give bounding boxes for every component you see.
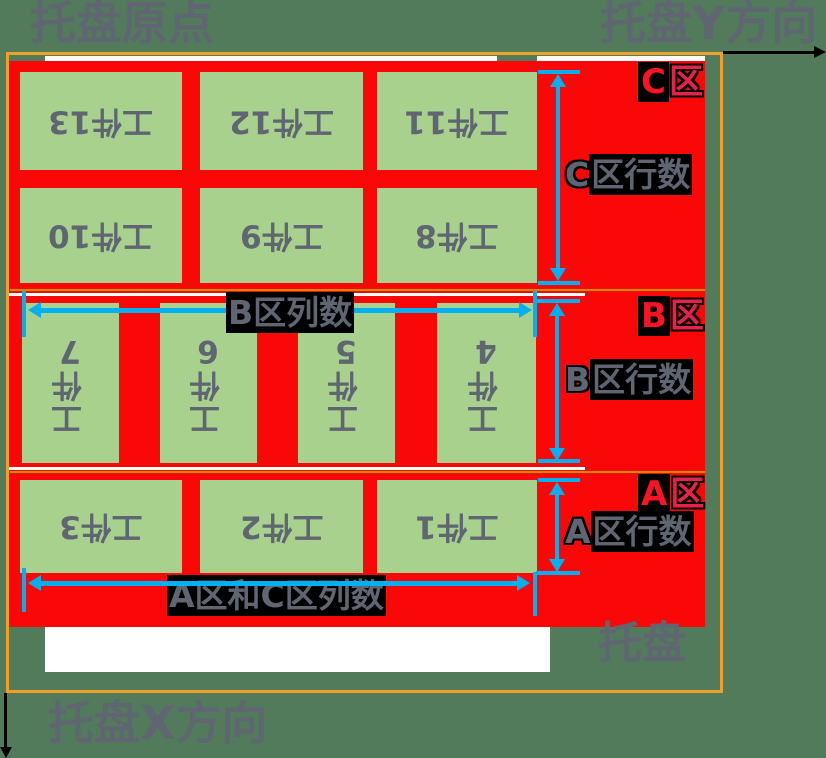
ac-cols-arrowhead-right-icon bbox=[517, 575, 530, 591]
pallet-x-direction-label: 托盘X方向 bbox=[48, 700, 267, 746]
x-axis-arrow-line bbox=[4, 693, 7, 748]
b-rows-count-first-char: B bbox=[565, 360, 590, 399]
b-rows-count-rest: 区行数 bbox=[590, 359, 693, 400]
x-axis-arrowhead-icon bbox=[0, 747, 12, 758]
b-cols-count-text: B区列数 bbox=[226, 292, 354, 333]
zone-c-suffix: 区 bbox=[669, 62, 703, 102]
zone-b-suffix: 区 bbox=[670, 296, 704, 336]
pallet-origin-label: 托盘原点 bbox=[30, 0, 214, 46]
b-cols-count-label: B区列数 bbox=[226, 295, 354, 331]
zone-c-tag: C区 bbox=[638, 64, 703, 101]
c-rows-count-label: C区行数 bbox=[565, 157, 692, 193]
b-rows-count-label: B区行数 bbox=[565, 362, 693, 398]
y-axis-arrowhead-icon bbox=[814, 46, 826, 58]
b-rows-dimension-line bbox=[555, 314, 559, 450]
a-rows-count-label: A区行数 bbox=[565, 514, 694, 550]
zone-a-tag: A区 bbox=[638, 476, 704, 513]
b-cols-arrowhead-right-icon bbox=[519, 302, 532, 318]
c-rows-count-first-char: C bbox=[565, 155, 589, 194]
c-rows-arrowhead-down-icon bbox=[550, 268, 566, 281]
c-rows-dimension-line bbox=[556, 85, 560, 270]
zone-b-tag: B区 bbox=[638, 298, 704, 335]
ac-cols-tick-left bbox=[22, 568, 26, 612]
zone-a-suffix: 区 bbox=[670, 474, 704, 514]
c-rows-tick-bottom bbox=[538, 281, 580, 285]
b-cols-tick-left bbox=[22, 291, 26, 337]
pallet-y-direction-label: 托盘Y方向 bbox=[600, 0, 817, 46]
b-rows-tick-bottom bbox=[538, 459, 580, 463]
c-rows-count-rest: 区行数 bbox=[589, 154, 692, 195]
b-cols-tick-right bbox=[533, 291, 537, 337]
a-rows-tick-bottom bbox=[536, 571, 580, 575]
pallet-label: 托盘 bbox=[598, 622, 686, 666]
pallet-layout-diagram: 托盘原点 托盘Y方向 托盘X方向 工件13 工件12 工件11 工件10 工件9… bbox=[0, 0, 826, 758]
a-rows-count-rest: 区行数 bbox=[591, 511, 694, 552]
zone-a-letter: A bbox=[638, 474, 670, 514]
a-rows-count-first-char: A bbox=[565, 512, 591, 551]
y-axis-arrow-line bbox=[723, 51, 815, 54]
ac-cols-dimension-line bbox=[40, 581, 518, 586]
a-rows-dimension-line bbox=[555, 493, 559, 561]
zone-c-letter: C bbox=[638, 62, 669, 102]
zone-b-letter: B bbox=[638, 296, 670, 336]
ac-cols-tick-right bbox=[533, 572, 537, 616]
